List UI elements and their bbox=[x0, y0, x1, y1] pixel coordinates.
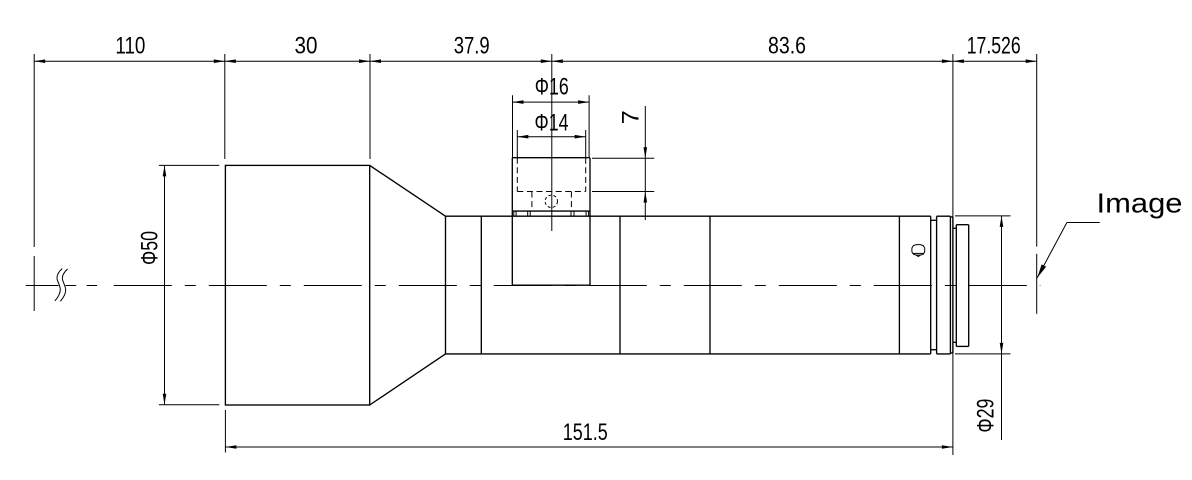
svg-text:Φ50: Φ50 bbox=[137, 231, 164, 265]
svg-text:Image: Image bbox=[1097, 188, 1183, 219]
svg-text:17.526: 17.526 bbox=[967, 33, 1021, 60]
svg-text:Φ14: Φ14 bbox=[535, 110, 569, 137]
svg-text:37.9: 37.9 bbox=[454, 33, 490, 60]
svg-text:110: 110 bbox=[115, 33, 145, 60]
svg-text:Φ16: Φ16 bbox=[535, 74, 569, 101]
svg-text:151.5: 151.5 bbox=[563, 419, 608, 446]
svg-text:7: 7 bbox=[617, 110, 644, 124]
svg-text:83.6: 83.6 bbox=[768, 33, 806, 60]
svg-text:30: 30 bbox=[295, 33, 318, 60]
svg-text:Φ29: Φ29 bbox=[973, 399, 1000, 433]
